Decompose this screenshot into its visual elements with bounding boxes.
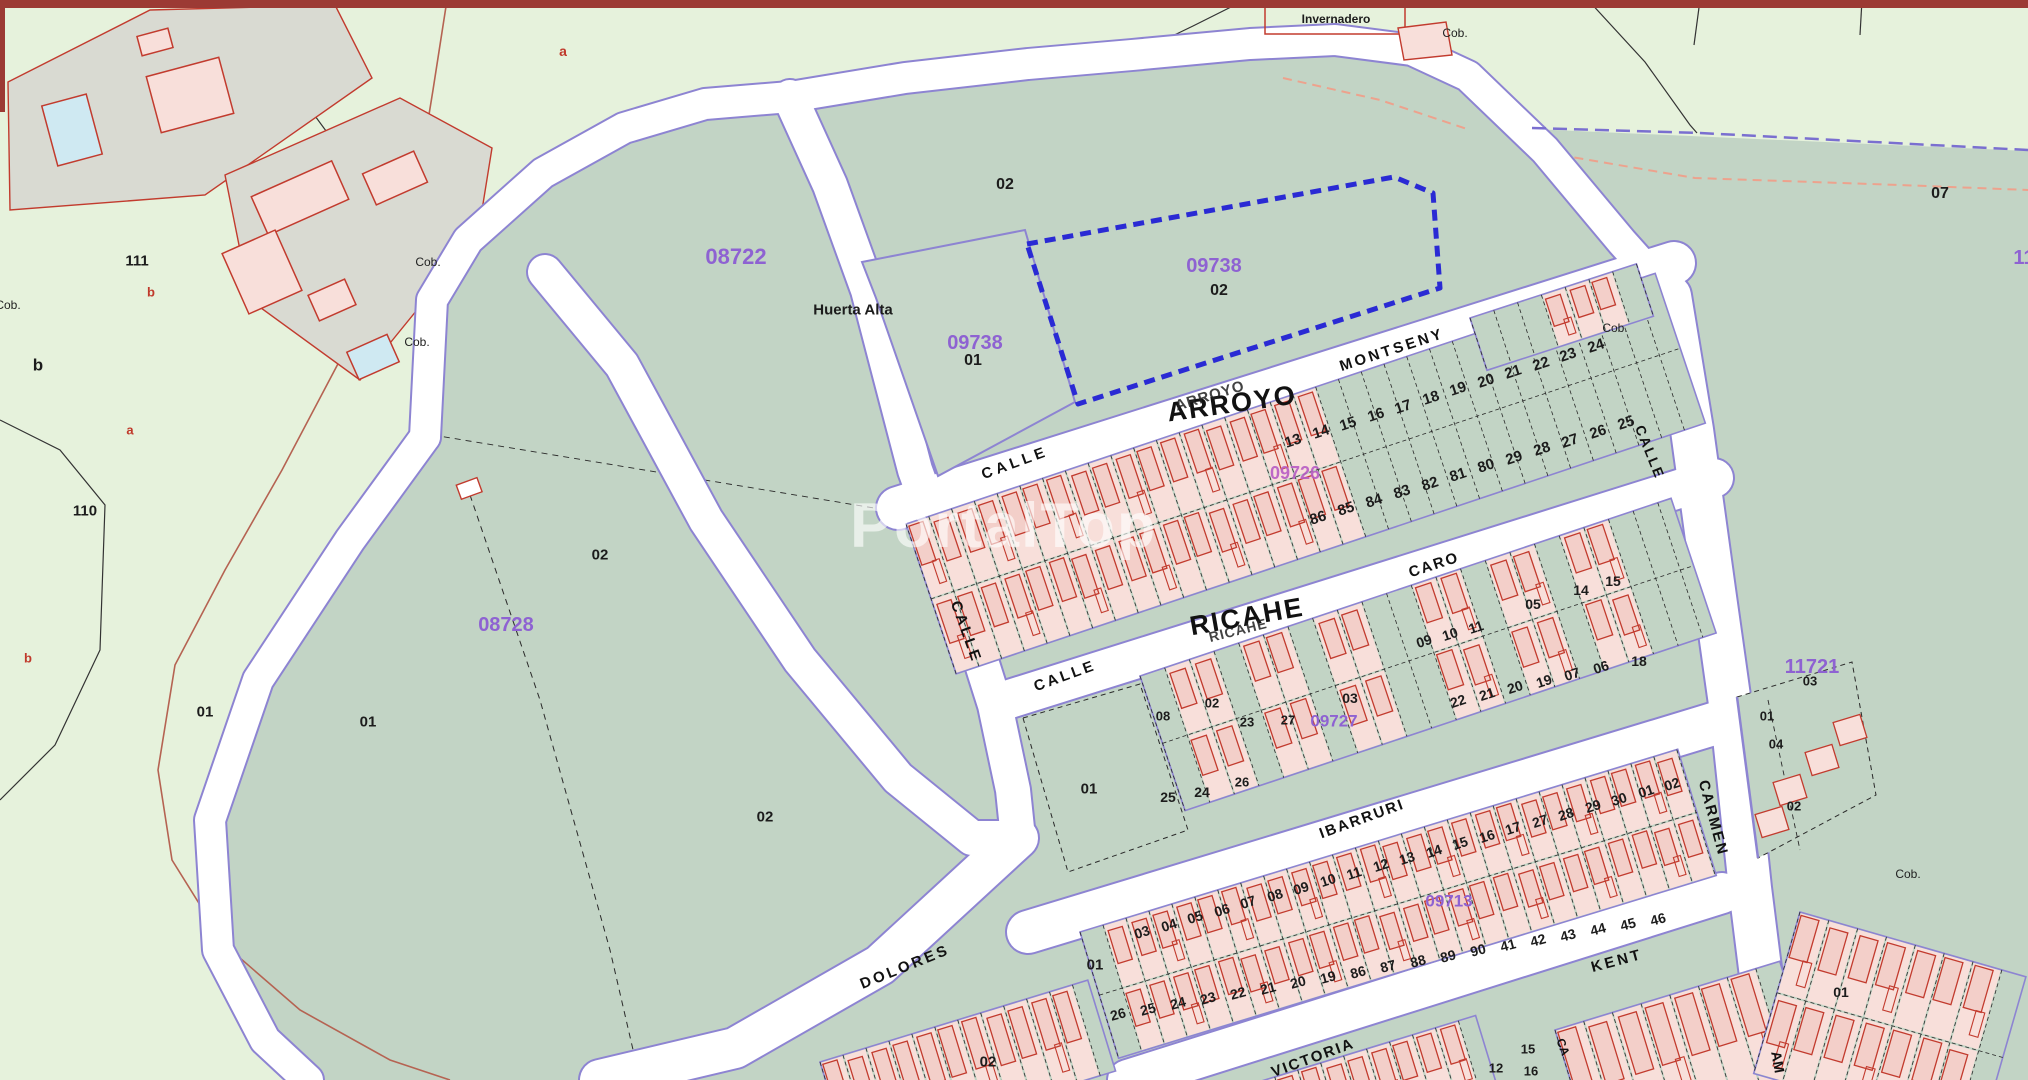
rural-boundary-line bbox=[1588, 0, 1697, 133]
cadastral-map[interactable] bbox=[0, 0, 2028, 1080]
building bbox=[1398, 22, 1452, 60]
rural-boundary-line bbox=[0, 420, 105, 800]
map-edge-bar-top bbox=[0, 0, 2028, 8]
cadastral-map-viewport[interactable]: 0872209738020973801087280972609727097131… bbox=[0, 0, 2028, 1080]
map-edge-bar-left bbox=[0, 0, 5, 112]
